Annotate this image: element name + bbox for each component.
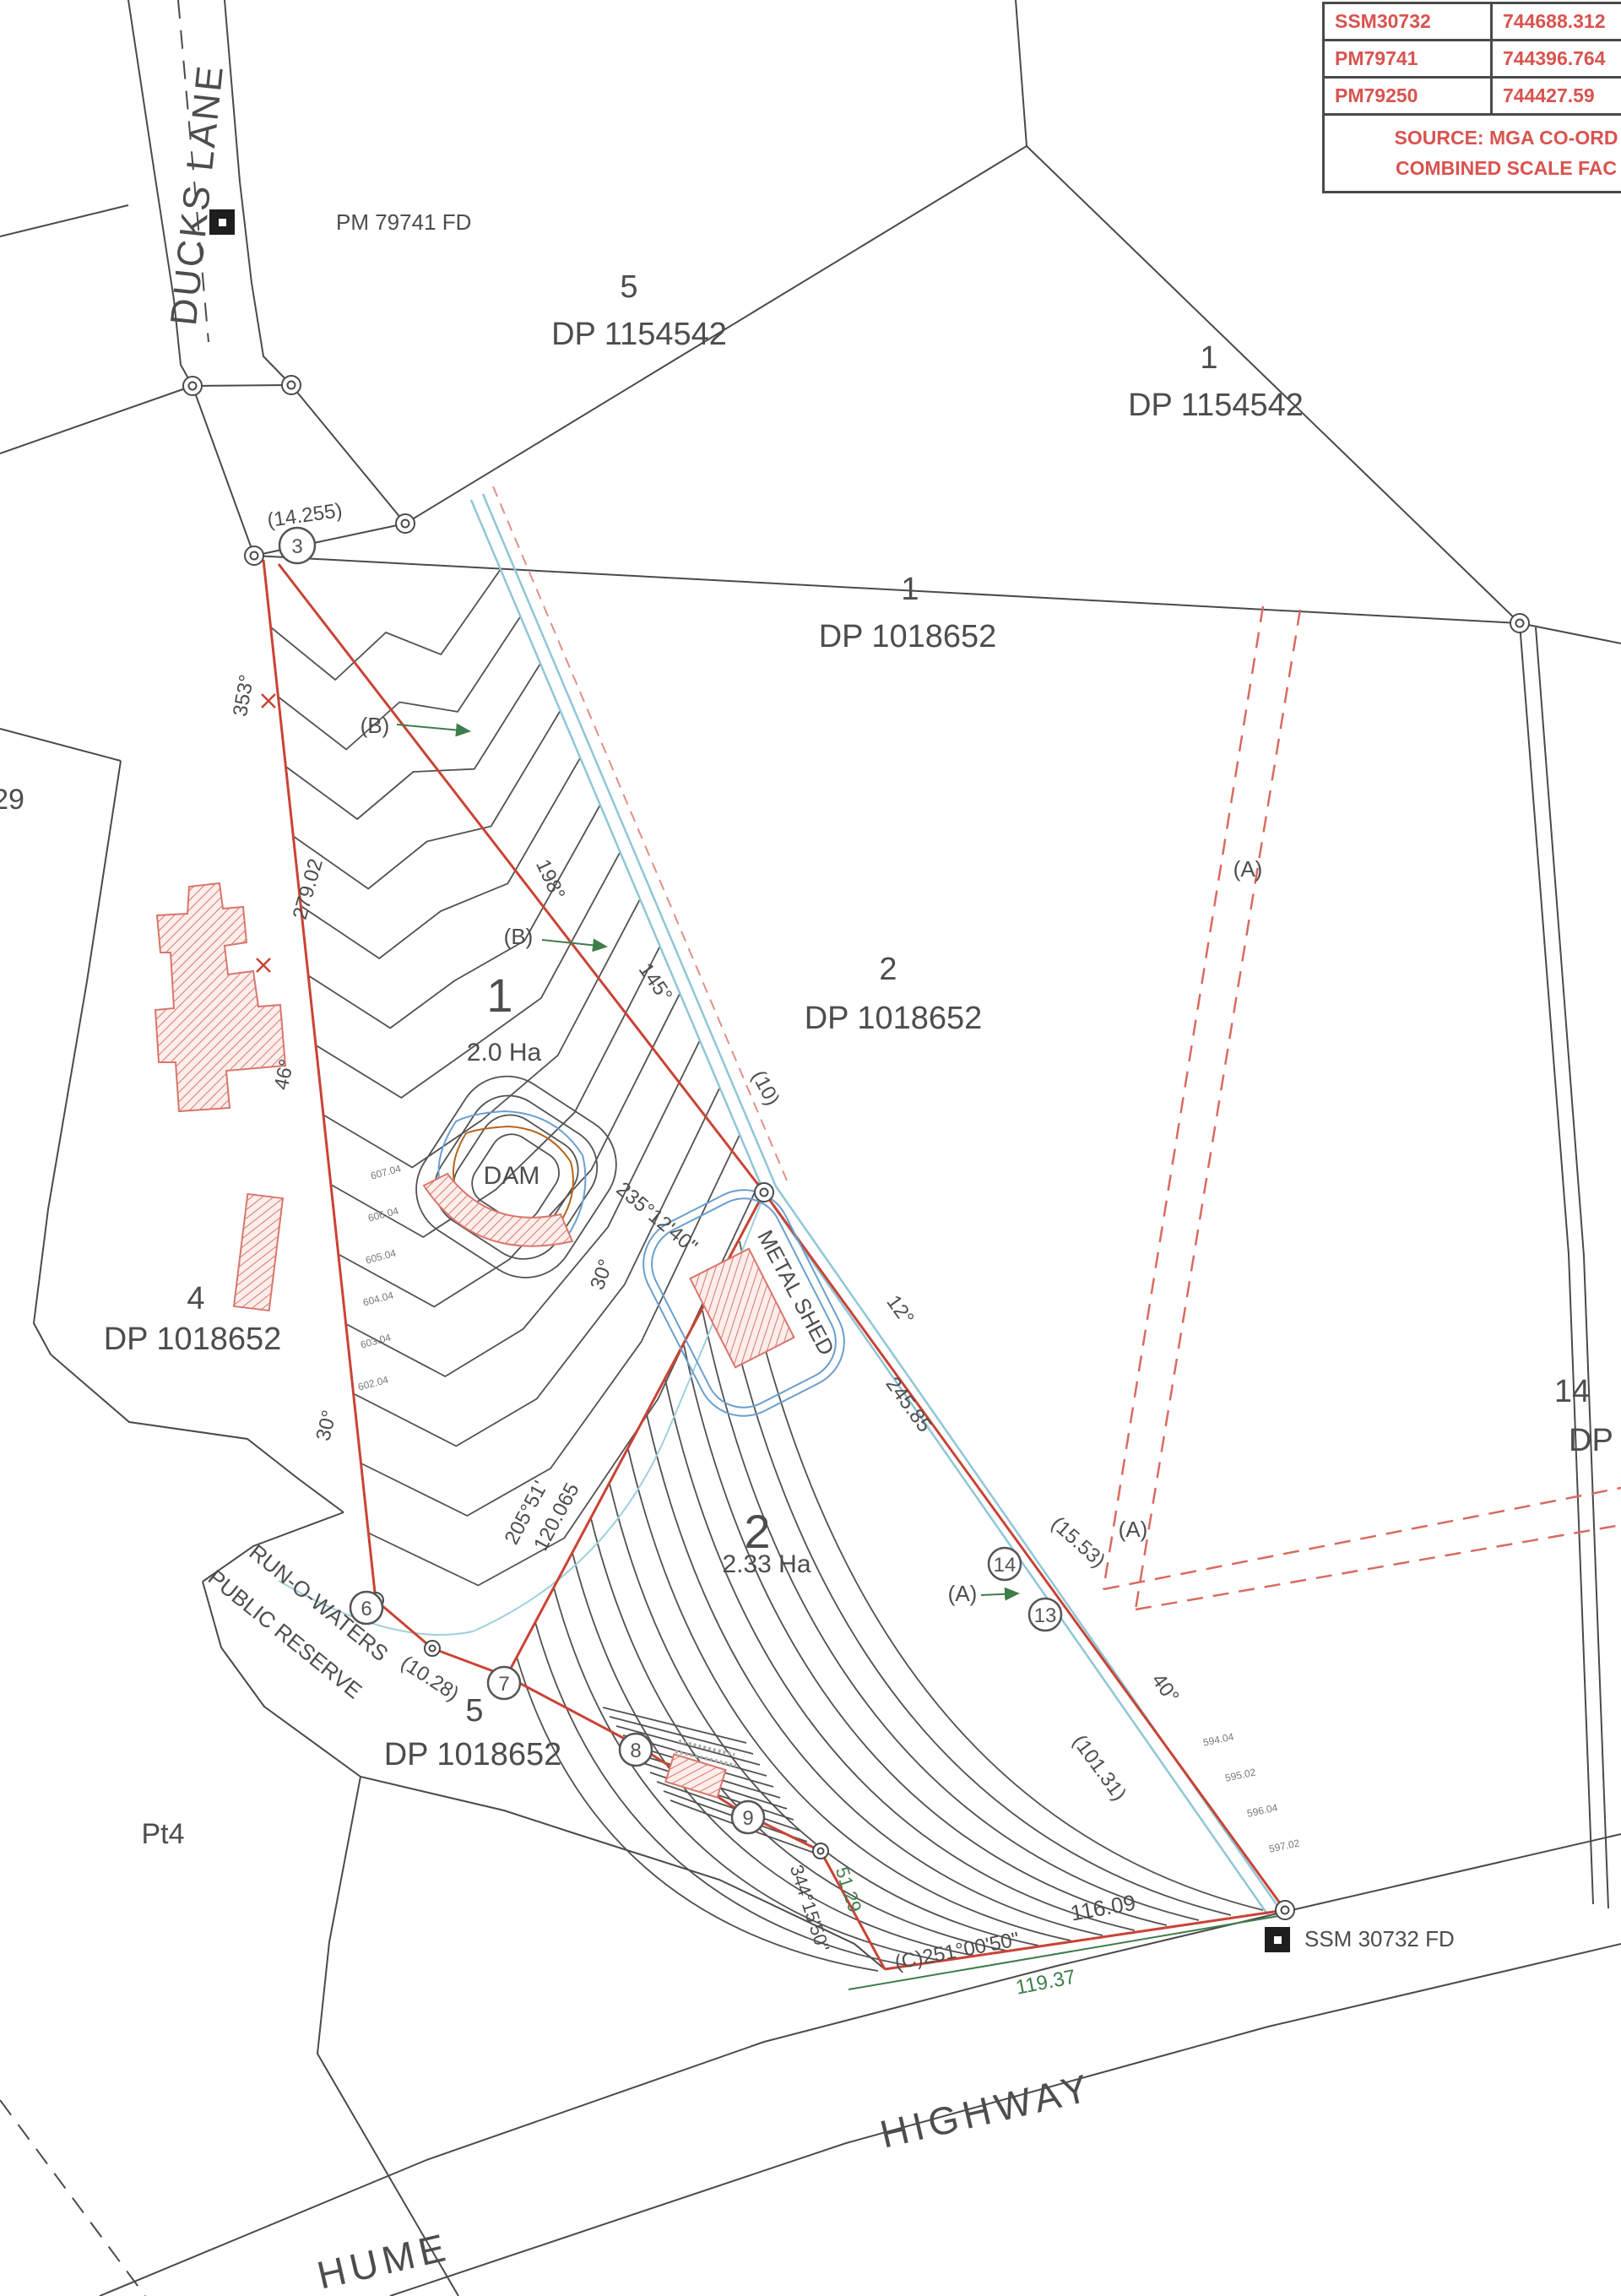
- label-lot1-1018652-dp: DP 1018652: [819, 619, 997, 654]
- point-3: 3: [279, 528, 315, 563]
- label-dist-11937: 119.37: [1014, 1966, 1077, 2000]
- label-subject-lot1-area: 2.0 Ha: [467, 1039, 542, 1067]
- dp1154542-east-line: [1027, 146, 1520, 623]
- coordinate-table-note: SOURCE: MGA CO-ORD COMBINED SCALE FAC: [1325, 116, 1621, 191]
- top-left-boundary: [0, 205, 128, 236]
- label-lot2-1018652-dp: DP 1018652: [805, 1001, 983, 1036]
- house-footprint: [155, 883, 285, 1111]
- corner-symbol: [425, 1641, 440, 1656]
- label-lot5-1018652-num: 5: [465, 1693, 483, 1729]
- label-highway: HIGHWAY: [876, 2065, 1098, 2156]
- easting-cell: 744427.59: [1493, 79, 1621, 113]
- label-bearing-30-b: 30°: [312, 1408, 341, 1443]
- pt4-divider: [317, 1777, 458, 2296]
- label-dim-10131: (101.31): [1068, 1730, 1130, 1805]
- label-bearing-C2510050: (C)251°00'50": [893, 1928, 1022, 1974]
- ne-corner-stub: [1520, 623, 1621, 643]
- point-8: 8: [620, 1734, 652, 1766]
- label-subject-lot2-area: 2.33 Ha: [722, 1550, 810, 1578]
- reserve-top-boundary: [51, 1354, 344, 1512]
- map-labels: DUCKS LANE HUME HIGHWAY PM 79741 FD SSM …: [0, 62, 1621, 2296]
- label-lot5-1154542-num: 5: [620, 269, 637, 305]
- contour-label: 605.04: [364, 1247, 397, 1267]
- corner-symbol: [1510, 614, 1529, 632]
- contour-label: 596.04: [1246, 1801, 1279, 1819]
- label-bearing-12: 12°: [881, 1291, 918, 1329]
- ssm-monument-icon: [1265, 1927, 1290, 1952]
- cadastral-plan-canvas: 3 6 7 8 9 13 14 DUCKS LANE HUME HIGHWAY …: [0, 0, 1621, 2296]
- west-boundary-line: [0, 386, 192, 453]
- label-dim-1028: (10.28): [397, 1652, 463, 1706]
- corner-symbol: [813, 1843, 828, 1859]
- lot1-lot2-dp1018652-line: [254, 556, 1520, 623]
- east-boundary-a: [1520, 623, 1593, 1904]
- label-lot14-dp: DP 11025: [1569, 1423, 1621, 1458]
- svg-text:8: 8: [630, 1740, 641, 1762]
- svg-text:7: 7: [498, 1673, 509, 1696]
- highway-dashed-edge: [0, 2100, 145, 2296]
- corner-symbol: [1276, 1901, 1294, 1919]
- coordinate-table: SSM30732 744688.312 PM79741 744396.764 P…: [1322, 2, 1621, 193]
- corner-symbol: [183, 377, 202, 395]
- label-dist-27902: 279.02: [289, 856, 328, 922]
- svg-text:9: 9: [742, 1807, 753, 1830]
- ducks-lane-east-edge: [225, 0, 291, 385]
- svg-text:3: 3: [291, 535, 302, 558]
- easement-line-a: [471, 500, 1268, 1915]
- contour-label: 607.04: [369, 1163, 402, 1182]
- easting-cell: 744688.312: [1493, 4, 1621, 39]
- note-line-1: SOURCE: MGA CO-ORD: [1330, 123, 1621, 154]
- label-hume: HUME: [313, 2224, 454, 2296]
- left-parcel-a: [0, 729, 121, 761]
- label-lot14-num: 14: [1554, 1374, 1590, 1409]
- left-parcel-b: [34, 761, 121, 1354]
- mark-id-cell: SSM30732: [1325, 4, 1493, 39]
- lane-cross-seg: [192, 385, 291, 386]
- label-lot1-1154542-num: 1: [1200, 340, 1217, 376]
- coordinate-table-row: SSM30732 744688.312: [1325, 4, 1621, 41]
- corner-markers: [183, 376, 1529, 1919]
- label-easement-B-2: (B): [504, 924, 534, 949]
- survey-point-circles: 3 6 7 8 9 13 14: [279, 528, 1061, 1833]
- x-tick-icon: [262, 694, 275, 708]
- point-14: 14: [989, 1548, 1021, 1580]
- label-lot2-1018652-num: 2: [879, 952, 897, 987]
- label-lot1-1154542-dp: DP 1154542: [1128, 388, 1304, 423]
- svg-text:6: 6: [361, 1598, 371, 1620]
- corner-symbol: [755, 1183, 773, 1202]
- contour-label: 602.04: [356, 1374, 389, 1393]
- label-lot4-1018652-num: 4: [187, 1281, 204, 1316]
- label-lot5-1018652-dp: DP 1018652: [384, 1737, 562, 1772]
- label-dim-1553: (15.53): [1047, 1512, 1110, 1572]
- point-9: 9: [732, 1801, 764, 1833]
- label-dim-14255: (14.255): [266, 499, 344, 532]
- arrow-icon: [981, 1593, 1018, 1595]
- contour-label: 597.02: [1268, 1837, 1301, 1854]
- label-lot29: 29: [0, 784, 24, 816]
- label-lot5-1154542-dp: DP 1154542: [551, 317, 727, 352]
- corner-symbol: [245, 546, 263, 565]
- easement-A-dash-1: [1103, 606, 1263, 1589]
- label-dist-5129: 51.29: [832, 1864, 866, 1915]
- dp1154542-north-line: [405, 0, 1027, 524]
- label-dist-11609: 116.09: [1069, 1890, 1138, 1926]
- easement-A-dash-4: [1136, 1525, 1621, 1609]
- label-ducks-lane: DUCKS LANE: [163, 62, 231, 328]
- parcel-boundaries: [0, 0, 1621, 2296]
- svg-text:14: 14: [994, 1554, 1017, 1577]
- east-boundary-b: [1536, 627, 1608, 1908]
- label-lot4-1018652-dp: DP 1018652: [104, 1322, 282, 1357]
- point-13: 13: [1029, 1599, 1061, 1631]
- label-dam: DAM: [484, 1162, 540, 1190]
- label-bearing-3441550: 344°15'50": [786, 1862, 834, 1954]
- corner-symbol: [282, 376, 301, 394]
- easement-arrows: [397, 725, 1018, 1595]
- label-easement-10: (10): [747, 1067, 784, 1109]
- contour-label: 594.04: [1202, 1730, 1235, 1748]
- label-lot1-1018652-num: 1: [901, 572, 919, 607]
- easement-A-dash-2: [1136, 610, 1300, 1609]
- lane-corner-seg: [192, 386, 254, 556]
- corner-symbol: [396, 514, 415, 533]
- easement-A-dash-3: [1103, 1488, 1621, 1589]
- contour-label: 595.02: [1224, 1766, 1257, 1783]
- note-line-2: COMBINED SCALE FAC: [1330, 154, 1621, 184]
- label-easement-A-2: (A): [1119, 1517, 1148, 1542]
- contour-label: 604.04: [361, 1289, 394, 1309]
- svg-text:13: 13: [1034, 1604, 1057, 1627]
- label-easement-B-1: (B): [361, 713, 390, 738]
- mark-id-cell: PM79250: [1325, 79, 1493, 113]
- coordinate-table-row: PM79250 744427.59: [1325, 79, 1621, 116]
- label-easement-A-1: (A): [1233, 856, 1263, 882]
- mark-id-cell: PM79741: [1325, 41, 1493, 76]
- outbuilding-footprint: [234, 1194, 283, 1311]
- label-bearing-40: 40°: [1147, 1669, 1183, 1707]
- label-ssm-monument: SSM 30732 FD: [1304, 1926, 1455, 1951]
- fence-ticks: [257, 694, 275, 972]
- lot1-south-boundary: [376, 1600, 507, 1676]
- label-easement-A-3: (A): [948, 1581, 978, 1606]
- coordinate-table-row: PM79741 744396.764: [1325, 41, 1621, 79]
- label-pm-monument: PM 79741 FD: [336, 209, 471, 235]
- point-7: 7: [488, 1667, 520, 1699]
- easting-cell: 744396.764: [1493, 41, 1621, 76]
- label-bearing-353: 353°: [229, 673, 258, 719]
- lot2-se-boundary: [764, 1192, 1285, 1910]
- label-pt4: Pt4: [141, 1818, 184, 1850]
- label-bearing-145: 145°: [634, 959, 677, 1007]
- x-tick-icon: [257, 958, 270, 972]
- label-bearing-30-a: 30°: [586, 1257, 618, 1293]
- label-subject-lot1-num: 1: [486, 969, 512, 1022]
